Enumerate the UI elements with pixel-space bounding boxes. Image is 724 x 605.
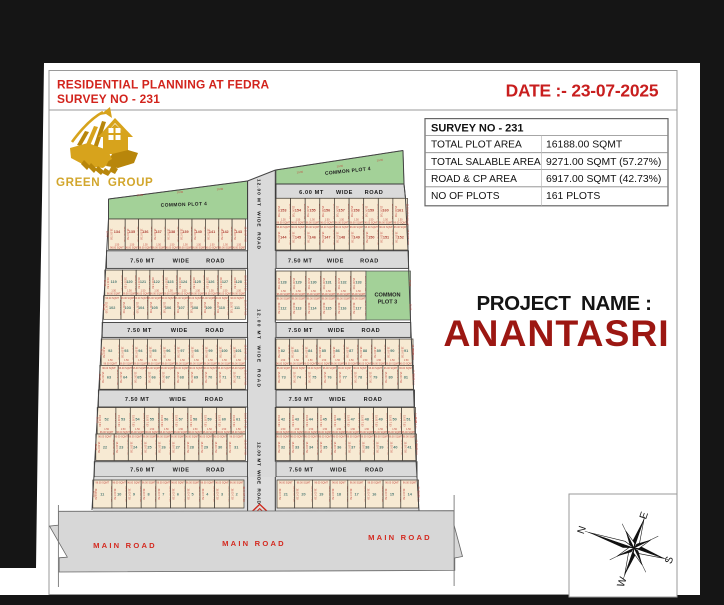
svg-text:96.00 SQMT: 96.00 SQMT [360,431,374,434]
svg-text:26: 26 [161,446,165,450]
svg-text:96.00 SQMT: 96.00 SQMT [323,367,337,370]
svg-text:146: 146 [310,236,316,240]
svg-text:15.00 7.50: 15.00 7.50 [206,229,209,241]
svg-text:96.00 SQMT: 96.00 SQMT [290,431,304,434]
svg-text:ROAD: ROAD [205,397,224,403]
svg-text:47: 47 [351,418,355,422]
svg-text:96.00 SQMT: 96.00 SQMT [276,431,290,434]
svg-text:40: 40 [393,446,397,450]
svg-text:15.00 7.50: 15.00 7.50 [218,415,221,427]
svg-text:68: 68 [180,376,184,380]
svg-text:17: 17 [354,492,358,496]
svg-text:96.00 SQMT: 96.00 SQMT [277,367,291,370]
svg-text:15.00 7.50: 15.00 7.50 [389,415,392,427]
svg-text:96.00 SQMT: 96.00 SQMT [389,435,403,438]
svg-text:15.00 7.50: 15.00 7.50 [333,442,336,454]
svg-text:ROAD: ROAD [365,467,384,473]
svg-text:39: 39 [379,446,383,450]
svg-text:96.00 SQMT: 96.00 SQMT [379,226,393,229]
svg-text:148: 148 [339,236,345,240]
svg-text:50: 50 [392,418,396,422]
svg-text:15.00 7.50: 15.00 7.50 [149,302,152,314]
svg-text:15.00 7.50: 15.00 7.50 [204,372,207,384]
svg-text:15.00 7.50: 15.00 7.50 [233,277,236,289]
svg-text:15.00 7.50: 15.00 7.50 [404,442,407,454]
svg-text:70: 70 [208,376,212,380]
svg-text:15.00 7.50: 15.00 7.50 [203,415,206,427]
svg-text:15.00 7.50: 15.00 7.50 [322,278,325,290]
svg-text:7.50 MT: 7.50 MT [130,467,155,473]
svg-text:15.00 7.50: 15.00 7.50 [375,442,378,454]
svg-text:15.00 7.50: 15.00 7.50 [277,232,280,244]
svg-text:96.00 SQMT: 96.00 SQMT [185,435,199,438]
svg-text:PLOT 3: PLOT 3 [378,300,398,306]
svg-text:15.00 7.50: 15.00 7.50 [306,206,309,218]
svg-text:TOTAL PLOT AREA: TOTAL PLOT AREA [431,140,522,151]
svg-text:15.00 7.50: 15.00 7.50 [291,347,294,359]
svg-text:55: 55 [150,418,154,422]
svg-text:ROAD: ROAD [206,467,225,473]
svg-text:96.00 SQMT: 96.00 SQMT [320,222,334,225]
svg-text:67: 67 [166,376,170,380]
svg-text:15.00 7.50: 15.00 7.50 [384,372,387,384]
svg-text:15.00 7.50: 15.00 7.50 [124,277,127,289]
svg-text:96.00 SQMT: 96.00 SQMT [160,431,174,434]
svg-text:15.00 7.50: 15.00 7.50 [336,232,339,244]
svg-text:77: 77 [343,376,347,380]
svg-text:15.00 7.50: 15.00 7.50 [394,206,397,218]
svg-text:71: 71 [222,376,226,380]
svg-text:6.00 MT: 6.00 MT [299,190,324,196]
svg-text:132: 132 [340,281,346,285]
svg-text:15.00 7.50: 15.00 7.50 [350,206,353,218]
svg-text:116: 116 [340,306,346,310]
svg-text:15.00 7.50: 15.00 7.50 [353,372,356,384]
svg-text:96.00 SQMT: 96.00 SQMT [232,362,246,365]
svg-text:WIDE: WIDE [173,467,190,473]
svg-text:15.00: 15.00 [103,280,107,287]
svg-text:15.00 7.50: 15.00 7.50 [365,206,368,218]
svg-text:25: 25 [147,446,151,450]
svg-text:96.00 SQMT: 96.00 SQMT [96,481,110,484]
svg-text:ROAD: ROAD [364,397,383,403]
svg-text:15.00 7.50: 15.00 7.50 [352,302,355,314]
svg-text:96.00 SQMT: 96.00 SQMT [230,435,244,438]
svg-text:15.00 7.50: 15.00 7.50 [110,229,113,241]
svg-text:15.00 7.50: 15.00 7.50 [319,442,322,454]
svg-text:96.00 SQMT: 96.00 SQMT [352,297,366,300]
svg-text:96.00 SQMT: 96.00 SQMT [386,362,400,365]
svg-text:96.00 SQMT: 96.00 SQMT [292,297,306,300]
svg-text:76: 76 [327,376,331,380]
svg-text:15.00: 15.00 [96,417,100,424]
svg-text:15.00 7.50: 15.00 7.50 [176,372,179,384]
svg-text:15.00 7.50: 15.00 7.50 [126,229,129,241]
svg-text:15.00 7.50: 15.00 7.50 [277,415,280,427]
svg-text:18: 18 [337,492,341,496]
svg-text:96.00 SQMT: 96.00 SQMT [388,431,402,434]
svg-text:15.00 7.50: 15.00 7.50 [193,229,196,241]
svg-text:96.00 SQMT: 96.00 SQMT [394,226,408,229]
svg-text:96.00 SQMT: 96.00 SQMT [374,431,388,434]
svg-text:96.00 SQMT: 96.00 SQMT [347,435,361,438]
svg-text:15.00 7.50: 15.00 7.50 [119,372,122,384]
svg-text:91: 91 [404,349,408,353]
svg-text:RESIDENTIAL PLANNING AT FEDRA: RESIDENTIAL PLANNING AT FEDRA [57,78,270,92]
svg-text:15.00 7.50: 15.00 7.50 [292,372,295,384]
svg-text:WIDE: WIDE [329,397,346,403]
svg-text:96.00 SQMT: 96.00 SQMT [292,293,306,296]
svg-text:96.00 SQMT: 96.00 SQMT [352,293,366,296]
svg-text:97: 97 [180,349,184,353]
svg-text:NO OF PLOTS: NO OF PLOTS [431,191,500,202]
svg-text:96: 96 [166,349,170,353]
svg-text:89: 89 [377,349,381,353]
svg-text:15.00 7.50: 15.00 7.50 [292,278,295,290]
svg-text:15: 15 [390,492,394,496]
svg-text:15.00 7.50: 15.00 7.50 [380,232,383,244]
svg-text:96.00 SQMT: 96.00 SQMT [171,481,185,484]
svg-text:15.00 7.50: 15.00 7.50 [366,488,369,500]
svg-text:15.00 7.50: 15.00 7.50 [307,302,310,314]
svg-text:145: 145 [295,236,301,240]
svg-text:15.00 7.50: 15.00 7.50 [165,277,168,289]
svg-text:96.00 SQMT: 96.00 SQMT [337,293,351,296]
svg-text:15.00 7.50: 15.00 7.50 [379,206,382,218]
svg-text:15.00: 15.00 [102,304,106,311]
svg-text:96.00 SQMT: 96.00 SQMT [297,481,311,484]
svg-text:15.00 7.50: 15.00 7.50 [186,442,189,454]
svg-text:114: 114 [310,306,317,310]
svg-text:15.00 7.50: 15.00 7.50 [361,415,364,427]
svg-text:11: 11 [100,492,104,496]
svg-text:15.00 7.50: 15.00 7.50 [278,488,281,500]
svg-text:96.00 SQMT: 96.00 SQMT [232,431,246,434]
svg-text:15.00 7.50: 15.00 7.50 [216,488,219,500]
svg-text:96.00 SQMT: 96.00 SQMT [276,435,290,438]
svg-text:15.00 7.50: 15.00 7.50 [400,347,403,359]
svg-text:33: 33 [295,446,299,450]
svg-text:15.00 7.50: 15.00 7.50 [143,442,146,454]
svg-text:15.00 7.50: 15.00 7.50 [331,488,334,500]
svg-text:88: 88 [363,349,367,353]
svg-text:15.00 7.50: 15.00 7.50 [349,488,352,500]
svg-text:15.00 7.50: 15.00 7.50 [148,347,151,359]
svg-text:15.00 MT 7.50: 15.00 MT 7.50 [244,275,247,291]
svg-text:96.00 SQMT: 96.00 SQMT [123,293,137,296]
svg-text:23: 23 [119,446,123,450]
svg-text:96.00 SQMT: 96.00 SQMT [186,481,200,484]
svg-text:15.00 7.50: 15.00 7.50 [322,302,325,314]
svg-text:15.00 7.50: 15.00 7.50 [230,302,233,314]
svg-text:21: 21 [284,492,288,496]
svg-text:96.00 SQMT: 96.00 SQMT [332,431,346,434]
svg-text:96.00 SQMT: 96.00 SQMT [350,226,364,229]
svg-text:9271.00 SQMT (57.27%): 9271.00 SQMT (57.27%) [546,157,661,168]
svg-text:96.00 SQMT: 96.00 SQMT [165,247,179,250]
svg-text:15.00 7.50: 15.00 7.50 [134,347,137,359]
svg-text:46: 46 [337,418,341,422]
svg-text:WIDE: WIDE [330,467,347,473]
svg-text:96.00 SQMT: 96.00 SQMT [215,481,229,484]
svg-text:96.00 SQMT: 96.00 SQMT [318,431,332,434]
svg-text:96.00 SQMT: 96.00 SQMT [306,222,320,225]
svg-text:15.00 7.50: 15.00 7.50 [338,372,341,384]
svg-text:ROAD: ROAD [361,328,380,334]
svg-text:15.00 7.50: 15.00 7.50 [189,415,192,427]
svg-text:96.00 SQMT: 96.00 SQMT [190,362,204,365]
svg-text:15.00: 15.00 [412,374,416,381]
svg-text:15.00 7.50: 15.00 7.50 [277,442,280,454]
svg-text:96.00 SQMT: 96.00 SQMT [276,362,290,365]
svg-text:15.00 7.50: 15.00 7.50 [307,278,310,290]
svg-text:96.00 SQMT: 96.00 SQMT [372,362,386,365]
svg-text:158: 158 [353,208,359,212]
svg-text:15.00: 15.00 [414,444,418,451]
svg-text:134: 134 [114,230,121,234]
svg-text:92: 92 [108,349,112,353]
svg-text:96.00 SQMT: 96.00 SQMT [188,431,202,434]
svg-text:10.50: 10.50 [177,190,184,194]
svg-text:15.00: 15.00 [409,304,413,311]
svg-text:MAIN ROAD: MAIN ROAD [368,533,432,542]
svg-text:15.00 7.50: 15.00 7.50 [232,415,235,427]
svg-text:15.00 7.50: 15.00 7.50 [162,347,165,359]
svg-text:15.00 7.50: 15.00 7.50 [218,372,221,384]
svg-text:15.00 MT 7.50: 15.00 MT 7.50 [244,300,247,316]
svg-text:96.00 SQMT: 96.00 SQMT [290,362,304,365]
svg-text:96.00 SQMT: 96.00 SQMT [204,362,218,365]
svg-text:96.00 SQMT: 96.00 SQMT [317,362,331,365]
svg-text:15.00 7.50: 15.00 7.50 [172,488,175,500]
svg-text:96.00 SQMT: 96.00 SQMT [393,222,407,225]
svg-text:12.00 MT WIDE ROAD: 12.00 MT WIDE ROAD [256,309,262,388]
svg-text:15.00 7.50: 15.00 7.50 [402,488,405,500]
svg-text:5: 5 [192,492,194,496]
svg-text:15.00 7.50: 15.00 7.50 [137,277,140,289]
svg-text:96.00 SQMT: 96.00 SQMT [139,247,153,250]
svg-text:15.00 7.50: 15.00 7.50 [201,488,204,500]
svg-text:15.00: 15.00 [94,444,98,451]
svg-text:96.00 SQMT: 96.00 SQMT [232,247,246,250]
svg-text:96.00 SQMT: 96.00 SQMT [345,362,359,365]
svg-text:15.00 7.50: 15.00 7.50 [277,278,280,290]
svg-text:15.00 7.50: 15.00 7.50 [306,232,309,244]
svg-text:15.00: 15.00 [414,417,418,424]
svg-text:96.00 SQMT: 96.00 SQMT [199,435,213,438]
svg-text:15.00 7.50: 15.00 7.50 [192,277,195,289]
svg-text:15.00 7.50: 15.00 7.50 [394,232,397,244]
svg-text:96.00 SQMT: 96.00 SQMT [157,435,171,438]
svg-text:15.00 7.50: 15.00 7.50 [375,415,378,427]
svg-text:7.50 MT: 7.50 MT [130,258,155,264]
svg-text:99: 99 [208,349,212,353]
svg-text:128: 128 [280,281,286,285]
svg-text:15.00 7.50: 15.00 7.50 [180,229,183,241]
svg-text:15.00 7.50: 15.00 7.50 [206,277,209,289]
svg-text:15.00 7.50: 15.00 7.50 [321,232,324,244]
svg-text:96.00 SQMT: 96.00 SQMT [104,362,118,365]
svg-text:61: 61 [236,418,240,422]
svg-text:7.50 MT: 7.50 MT [289,397,314,403]
svg-text:15.00 7.50: 15.00 7.50 [347,442,350,454]
svg-text:153: 153 [280,208,286,212]
svg-text:15.00 7.50: 15.00 7.50 [277,302,280,314]
svg-text:96.00 SQMT: 96.00 SQMT [142,481,156,484]
svg-text:15.00 7.50: 15.00 7.50 [361,442,364,454]
svg-text:ANANTASRI: ANANTASRI [443,312,669,354]
svg-text:27: 27 [176,446,180,450]
svg-text:96.00 SQMT: 96.00 SQMT [148,362,162,365]
svg-text:96.00 SQMT: 96.00 SQMT [213,435,227,438]
svg-text:22: 22 [103,446,107,450]
svg-text:66: 66 [151,376,155,380]
svg-text:38: 38 [365,446,369,450]
svg-text:96.00 SQMT: 96.00 SQMT [402,431,416,434]
svg-text:15.00 7.50: 15.00 7.50 [117,415,120,427]
svg-text:15.00 7.50: 15.00 7.50 [359,347,362,359]
svg-text:115: 115 [325,306,331,310]
svg-text:10: 10 [117,492,121,496]
svg-text:96.00 SQMT: 96.00 SQMT [322,297,336,300]
svg-text:96.00 SQMT: 96.00 SQMT [332,481,346,484]
svg-text:15.00 7.50: 15.00 7.50 [160,415,163,427]
svg-text:60: 60 [222,418,226,422]
svg-text:75: 75 [312,376,316,380]
svg-text:15.00 7.50: 15.00 7.50 [220,229,223,241]
svg-text:12.00 MT WIDE ROAD: 12.00 MT WIDE ROAD [256,442,262,505]
svg-text:15.00 7.50: 15.00 7.50 [228,442,231,454]
svg-text:96.00 SQMT: 96.00 SQMT [291,222,305,225]
svg-text:96.00 SQMT: 96.00 SQMT [399,362,413,365]
svg-text:6917.00 SQMT (42.73%): 6917.00 SQMT (42.73%) [546,174,661,185]
svg-text:96.00 SQMT: 96.00 SQMT [110,247,124,250]
svg-text:15.00 7.50: 15.00 7.50 [157,488,160,500]
svg-text:15.00 7.50: 15.00 7.50 [291,415,294,427]
svg-text:WIDE: WIDE [328,328,345,334]
svg-text:15.00 7.50: 15.00 7.50 [347,415,350,427]
svg-text:15.00 7.50: 15.00 7.50 [146,415,149,427]
svg-text:149: 149 [354,236,360,240]
svg-text:15.00 7.50: 15.00 7.50 [384,488,387,500]
svg-text:63: 63 [107,376,111,380]
svg-text:69: 69 [194,376,198,380]
svg-text:15.00 7.50: 15.00 7.50 [133,372,136,384]
svg-text:COMMON: COMMON [374,293,400,299]
svg-text:MAIN ROAD: MAIN ROAD [93,541,157,550]
svg-text:81: 81 [404,376,408,380]
svg-text:15.00 7.50: 15.00 7.50 [323,372,326,384]
svg-text:15.00 7.50: 15.00 7.50 [148,372,151,384]
svg-text:15.00 7.50: 15.00 7.50 [296,488,299,500]
svg-text:96.00 SQMT: 96.00 SQMT [143,435,157,438]
svg-text:78: 78 [358,376,362,380]
svg-text:15.00 7.50: 15.00 7.50 [158,442,161,454]
svg-text:15.00 MT 7.50: 15.00 MT 7.50 [244,345,247,361]
svg-text:96.00 SQMT: 96.00 SQMT [100,431,114,434]
svg-text:15.00 7.50: 15.00 7.50 [337,278,340,290]
svg-text:96.00 SQMT: 96.00 SQMT [337,297,351,300]
svg-text:96.00 SQMT: 96.00 SQMT [399,367,413,370]
svg-text:96.00 SQMT: 96.00 SQMT [116,431,130,434]
svg-text:15.00 7.50: 15.00 7.50 [176,302,179,314]
svg-text:41: 41 [407,446,411,450]
svg-text:96.00 SQMT: 96.00 SQMT [205,247,219,250]
svg-text:96.00 SQMT: 96.00 SQMT [177,293,191,296]
svg-text:15.00 7.50: 15.00 7.50 [292,206,295,218]
svg-text:86: 86 [335,349,339,353]
svg-text:144: 144 [280,236,287,240]
svg-text:96.00 SQMT: 96.00 SQMT [338,367,352,370]
svg-text:15.00 7.50: 15.00 7.50 [332,347,335,359]
svg-text:159: 159 [368,208,374,212]
svg-text:111: 111 [234,306,240,310]
svg-text:96.00 SQMT: 96.00 SQMT [304,435,318,438]
svg-text:15.00 MT 7.50: 15.00 MT 7.50 [244,370,247,386]
svg-text:15.00: 15.00 [408,280,412,287]
svg-text:130: 130 [310,281,316,285]
svg-text:48: 48 [365,418,369,422]
svg-text:15.00 7.50: 15.00 7.50 [151,277,154,289]
svg-text:96.00 SQMT: 96.00 SQMT [365,226,379,229]
svg-text:15.00 7.50: 15.00 7.50 [140,229,143,241]
svg-text:15.00 7.50: 15.00 7.50 [305,415,308,427]
svg-text:19: 19 [319,492,323,496]
svg-text:20: 20 [301,492,305,496]
svg-text:45: 45 [323,418,327,422]
svg-text:15.00 MT 7.50: 15.00 MT 7.50 [244,440,247,456]
svg-text:15.00: 15.00 [416,491,420,498]
svg-text:156: 156 [324,208,330,212]
svg-text:96.00 SQMT: 96.00 SQMT [358,362,372,365]
svg-text:ROAD: ROAD [205,328,224,334]
svg-text:15.00 MT 7.50: 15.00 MT 7.50 [242,486,245,502]
svg-text:96.00 SQMT: 96.00 SQMT [353,367,367,370]
svg-text:65: 65 [137,376,141,380]
svg-text:15.00 7.50: 15.00 7.50 [175,415,178,427]
svg-text:131: 131 [325,281,331,285]
svg-text:96.00 SQMT: 96.00 SQMT [230,297,244,300]
svg-text:95: 95 [152,349,156,353]
svg-text:96.00 SQMT: 96.00 SQMT [134,362,148,365]
svg-text:96.00 SQMT: 96.00 SQMT [205,293,219,296]
svg-text:15.00: 15.00 [411,349,415,356]
svg-text:37: 37 [351,446,355,450]
svg-text:96.00 SQMT: 96.00 SQMT [174,431,188,434]
svg-text:15.00 7.50: 15.00 7.50 [387,347,390,359]
svg-text:15.00 7.50: 15.00 7.50 [219,277,222,289]
svg-text:96.00 SQMT: 96.00 SQMT [303,362,317,365]
svg-text:15.00: 15.00 [406,219,410,226]
svg-text:155: 155 [309,208,315,212]
svg-text:96.00 SQMT: 96.00 SQMT [218,362,232,365]
svg-text:152: 152 [398,236,404,240]
svg-text:7: 7 [162,492,164,496]
svg-text:WIDE: WIDE [336,190,353,196]
svg-text:96.00 SQMT: 96.00 SQMT [129,435,143,438]
svg-text:15.00 7.50: 15.00 7.50 [113,488,116,500]
svg-text:119: 119 [111,280,117,284]
svg-text:WIDE: WIDE [173,258,190,264]
svg-text:96.00 SQMT: 96.00 SQMT [318,435,332,438]
svg-text:15.00 7.50: 15.00 7.50 [277,206,280,218]
svg-text:96.00 SQMT: 96.00 SQMT [218,293,232,296]
svg-text:15.00 7.50: 15.00 7.50 [142,488,145,500]
svg-text:32: 32 [281,446,285,450]
svg-text:113: 113 [295,306,301,310]
svg-text:16188.00 SQMT: 16188.00 SQMT [546,140,623,151]
svg-text:96.00 SQMT: 96.00 SQMT [112,481,126,484]
